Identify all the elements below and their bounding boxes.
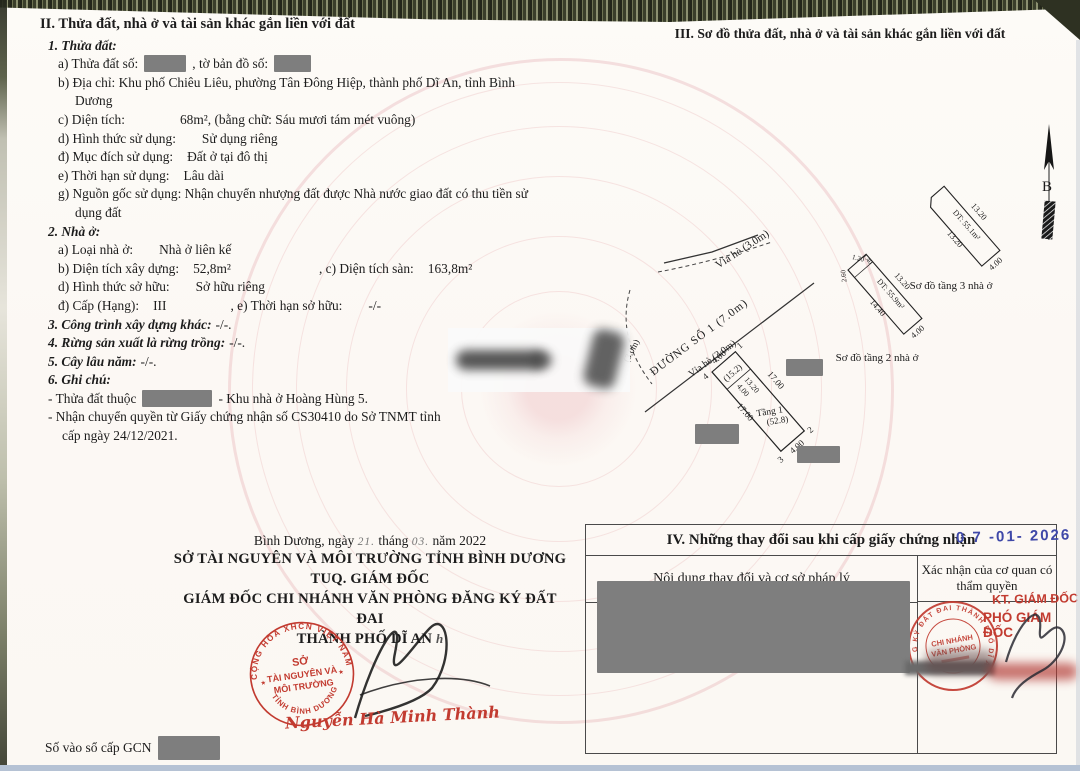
section-3-title: III. Sơ đồ thửa đất, nhà ở và tài sản kh…	[620, 26, 1060, 42]
redaction-map-sheet	[274, 55, 311, 72]
house-type-line: a) Loại nhà ở:Nhà ở liên kế	[58, 241, 550, 260]
redaction-table-content	[597, 581, 910, 673]
item-1-heading: 1. Thửa đất:	[48, 37, 550, 56]
date-received-stamp: 0 7 -01- 2026	[956, 526, 1072, 546]
use-form-line: d) Hình thức sử dụng:Sử dụng riêng	[58, 130, 550, 149]
ownership-form-line: d) Hình thức sở hữu:Sở hữu riêng	[58, 278, 550, 297]
date-line: Bình Dương, ngày 21. tháng 03. năm 2022	[170, 533, 570, 549]
footer-gcn-number: Số vào sổ cấp GCN	[45, 736, 226, 760]
org-name: SỞ TÀI NGUYÊN VÀ MÔI TRƯỜNG TỈNH BÌNH DƯ…	[170, 549, 570, 569]
redaction-parcel-number	[144, 55, 186, 72]
use-purpose-line: đ) Mục đích sử dụng:Đất ở tại đô thị	[58, 148, 550, 167]
redaction-diagram-1	[786, 359, 823, 376]
seal-line-1: SỞ	[291, 654, 310, 669]
seal-star-left-icon: ★	[260, 680, 267, 688]
scan-edge-right	[1076, 40, 1080, 771]
redaction-gcn-number	[158, 736, 220, 760]
note-line-2: - Nhận chuyển quyền từ Giấy chứng nhận s…	[48, 408, 550, 427]
floor3-dim-right: 13.20	[969, 201, 989, 222]
floor2-dim-bottom: 4.00	[909, 323, 927, 340]
redaction-owner	[142, 390, 212, 407]
north-label: B	[1042, 179, 1052, 195]
certificate-page: II. Thửa đất, nhà ở và tài sản khác gắn …	[0, 0, 1080, 771]
handwritten-month: 03.	[412, 536, 429, 548]
note-line-1: - Thửa đất thuộc- Khu nhà ở Hoàng Hùng 5…	[48, 390, 550, 409]
floor3-caption: Sơ đồ tầng 3 nhà ở	[910, 280, 993, 292]
scan-edge-left	[0, 0, 7, 771]
redaction-diagram-3	[797, 446, 840, 463]
floor3-dim-left: 13.20	[945, 228, 965, 249]
build-area-line: b) Diện tích xây dựng:52,8m², c) Diện tí…	[58, 260, 550, 279]
blur-stamp-overlap	[925, 650, 995, 674]
use-origin-line: g) Nguồn gốc sử dụng: Nhận chuyển nhượng…	[58, 185, 550, 222]
floor2-dim-right: 13.20	[892, 270, 912, 291]
area-line: c) Diện tích:68m², (bằng chữ: Sáu mươi t…	[58, 111, 550, 130]
blur-redaction-province	[448, 328, 630, 392]
handwritten-day: 21.	[358, 536, 375, 548]
tuq-line: TUQ. GIÁM ĐỐC	[170, 569, 570, 589]
grade-line: đ) Cấp (Hạng):III, e) Thời hạn sở hữu:-/…	[58, 297, 550, 316]
north-arrow-icon: B	[1041, 124, 1055, 240]
floor3-dim-bottom: 4.00	[987, 255, 1005, 272]
note-line-3: cấp ngày 24/12/2021.	[48, 427, 550, 446]
scan-edge-bottom	[0, 765, 1080, 771]
use-term-line: e) Thời hạn sử dụng:Lâu dài	[58, 167, 550, 186]
item-2-heading: 2. Nhà ở:	[48, 223, 550, 242]
address-line: b) Địa chỉ: Khu phố Chiêu Liêu, phường T…	[58, 74, 550, 111]
floor3-area: DT: 55.1m²	[951, 208, 983, 242]
parcel-number-line: a) Thửa đất số:, tờ bản đồ số:	[58, 55, 550, 74]
floor3-sketch: 13.20 13.20 DT: 55.1m² 4.00	[921, 176, 1019, 279]
confirmation-signature	[988, 590, 1080, 702]
redaction-diagram-2	[695, 424, 739, 444]
